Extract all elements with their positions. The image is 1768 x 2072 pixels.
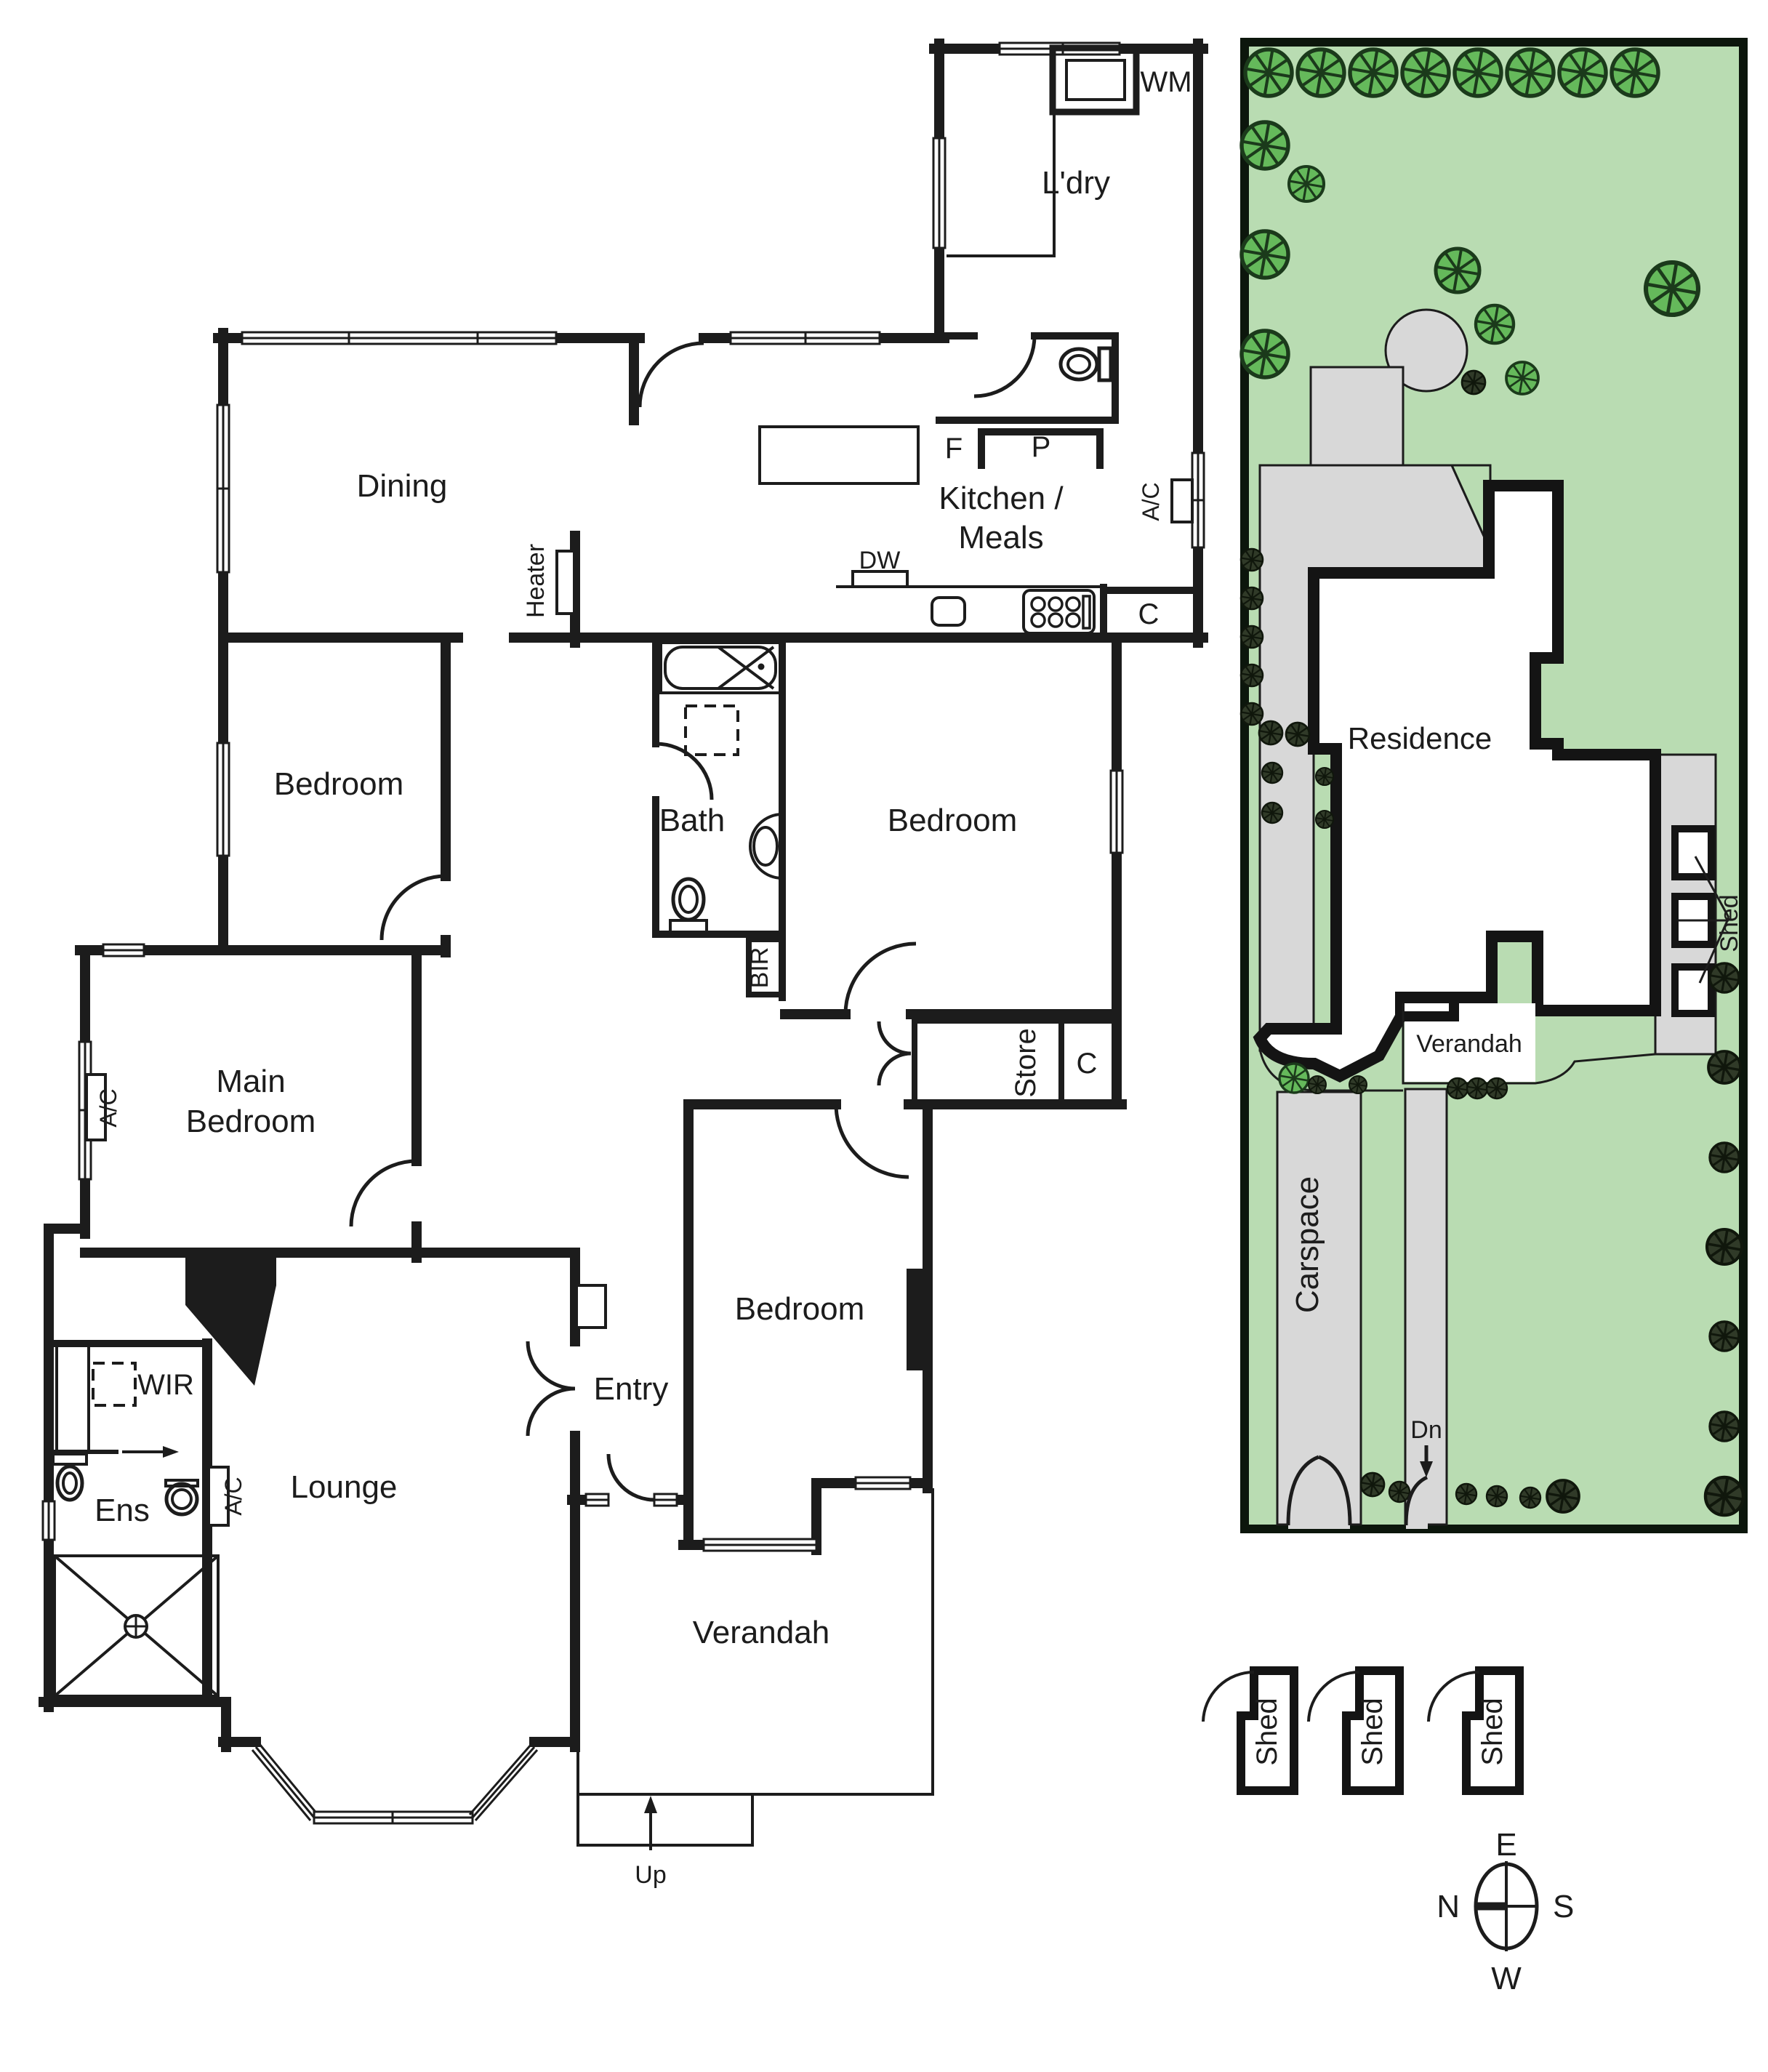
site-carspace-label: Carspace <box>1290 1176 1325 1313</box>
laundry-label: L'dry <box>1042 165 1110 201</box>
dishwasher-label: DW <box>859 547 901 574</box>
floorplan-page: Residence Verandah Carspace Dn Shed Shed… <box>0 0 1768 2072</box>
kitchen-cupboard-label: C <box>1138 598 1160 630</box>
shed-1-label: Shed <box>1251 1698 1283 1765</box>
site-dn-label: Dn <box>1410 1416 1442 1444</box>
bath-door <box>656 744 712 800</box>
compass-east: E <box>1495 1827 1516 1863</box>
ens-shower <box>55 1556 218 1696</box>
entry-label: Entry <box>594 1371 669 1407</box>
lounge-double-door-bottom <box>528 1389 575 1436</box>
bath-basin <box>750 814 782 878</box>
ac-unit-kitchen <box>1172 480 1192 522</box>
site-plan: Residence Verandah Carspace Dn Shed <box>1241 42 1743 1529</box>
bedroom-middle-label: Bedroom <box>888 803 1018 838</box>
front-entry-door <box>608 1454 654 1500</box>
kitchen-sink <box>932 598 965 625</box>
fireplace <box>185 1248 276 1386</box>
fridge-label: F <box>945 433 963 465</box>
wc-door <box>974 336 1034 396</box>
wm-label: WM <box>1140 66 1192 98</box>
bath-toilet <box>670 879 707 932</box>
floorplan-canvas: Residence Verandah Carspace Dn Shed Shed… <box>0 0 1768 2072</box>
site-verandah-label: Verandah <box>1416 1030 1522 1058</box>
compass-south: S <box>1553 1889 1574 1924</box>
site-residence-label: Residence <box>1348 721 1492 755</box>
bathtub <box>661 643 780 693</box>
laundry-bench <box>947 54 1054 256</box>
bedroom-left-label: Bedroom <box>274 766 404 802</box>
bedroom-front-door <box>836 1104 909 1177</box>
hall-double-door-top <box>879 1021 911 1053</box>
stove <box>1024 590 1094 633</box>
store-cupboard-label: C <box>1077 1048 1098 1080</box>
shower-dashed <box>686 706 738 755</box>
bedroom-middle-door <box>845 944 916 1014</box>
wir-dashed <box>93 1363 135 1405</box>
compass-west: W <box>1491 1961 1522 1996</box>
wir-label: WIR <box>137 1369 194 1401</box>
store-label: Store <box>1010 1028 1042 1098</box>
heater-label: Heater <box>522 544 550 618</box>
ac-main-bedroom-label: A/C <box>95 1088 121 1127</box>
shed-2-label: Shed <box>1357 1698 1389 1765</box>
bedroom-left-door <box>382 876 446 940</box>
verandah-label: Verandah <box>693 1615 829 1650</box>
entry-cupboard <box>576 1285 606 1328</box>
lounge-label: Lounge <box>291 1469 398 1505</box>
compass-north: N <box>1436 1889 1460 1924</box>
floor-plan: Dining Bedroom Bedroom Bedroom Main Bedr… <box>43 43 1204 1889</box>
site-shed-pointer-label: Shed <box>1716 894 1743 952</box>
heater-unit <box>557 551 574 614</box>
bath-label: Bath <box>659 803 726 838</box>
ens-toilet <box>53 1454 87 1500</box>
bedroom-front-label: Bedroom <box>735 1291 865 1327</box>
chimney <box>907 1269 928 1370</box>
lounge-double-door-top <box>528 1341 575 1389</box>
hall-double-door-bottom <box>879 1053 911 1085</box>
kitchen-island <box>760 427 918 483</box>
ens-basin <box>166 1480 198 1514</box>
ensuite-label: Ens <box>95 1493 150 1528</box>
shed-row: Shed Shed Shed <box>1203 1671 1519 1791</box>
kitchen-label-1: Kitchen / <box>939 481 1064 516</box>
up-arrow <box>644 1796 657 1850</box>
wir-arrow <box>122 1446 179 1458</box>
dining-label: Dining <box>357 468 448 504</box>
kitchen-label-2: Meals <box>958 520 1043 555</box>
main-bedroom-door <box>351 1161 417 1226</box>
ac-ensuite-label: A/C <box>220 1477 246 1515</box>
main-bedroom-label-2: Bedroom <box>186 1104 316 1139</box>
up-label: Up <box>635 1861 666 1889</box>
bir-label: BIR <box>746 947 773 989</box>
shed-3-label: Shed <box>1476 1698 1508 1765</box>
main-bedroom-label-1: Main <box>216 1064 285 1099</box>
compass-rose: E S W N <box>1436 1827 1574 1996</box>
wc-toilet <box>1061 348 1111 380</box>
pantry-label: P <box>1032 431 1051 463</box>
ac-kitchen-label: A/C <box>1138 482 1164 521</box>
dining-passage-door <box>640 343 704 407</box>
